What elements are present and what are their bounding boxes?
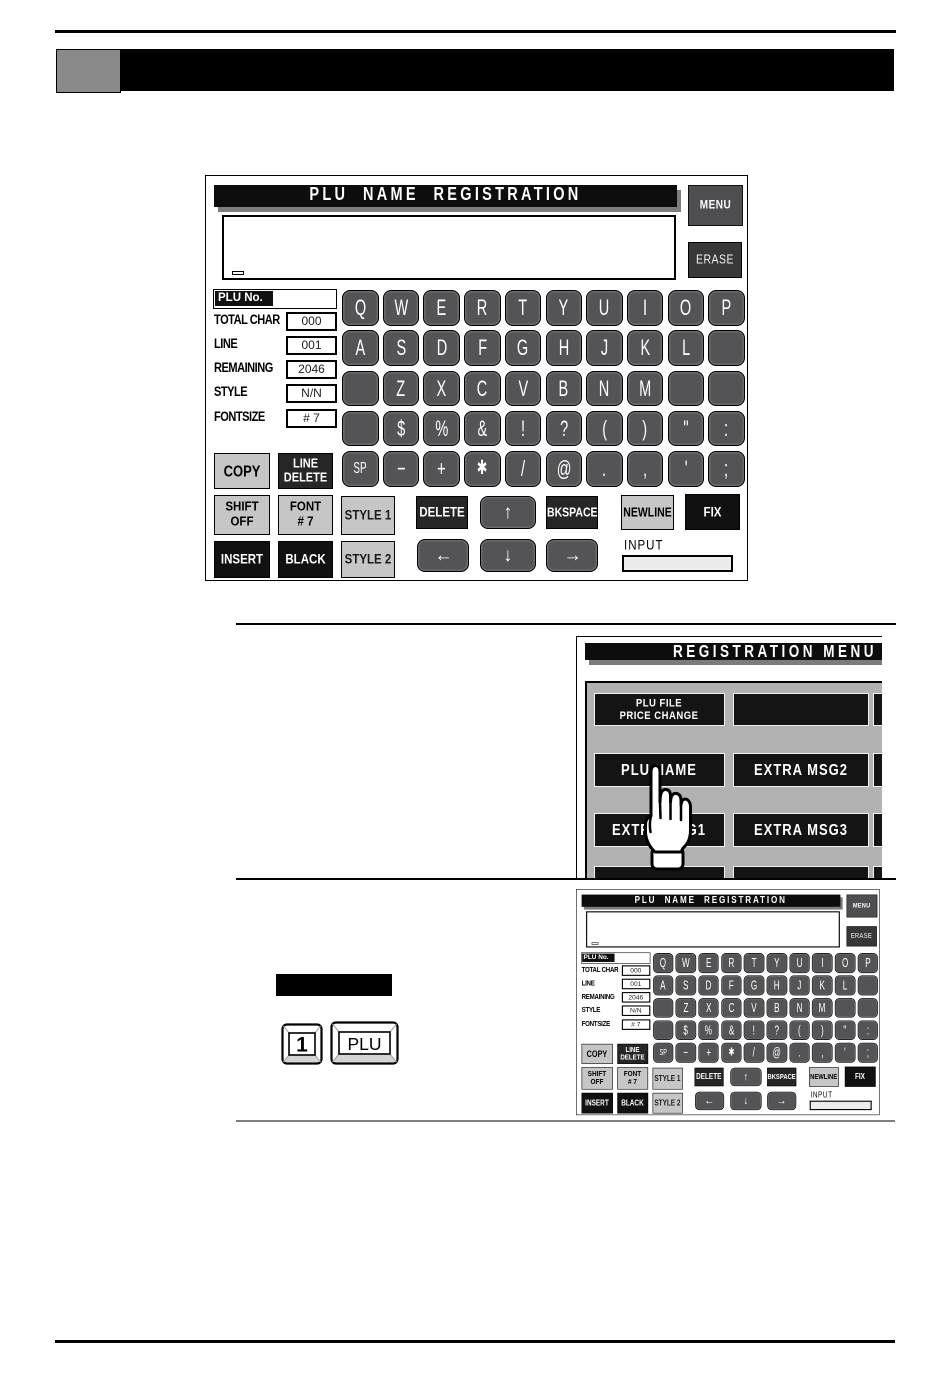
svg-text:PLU: PLU bbox=[347, 1034, 381, 1054]
svg-text:1: 1 bbox=[296, 1034, 308, 1057]
